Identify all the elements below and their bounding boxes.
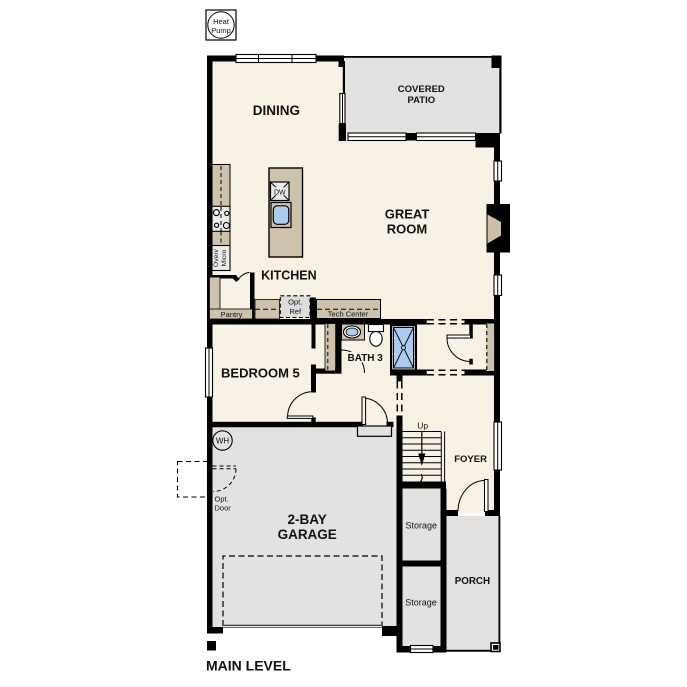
- svg-text:COVERED: COVERED: [398, 84, 445, 95]
- svg-text:DINING: DINING: [253, 103, 300, 118]
- svg-text:Oven/: Oven/: [213, 249, 220, 267]
- svg-text:Pump: Pump: [211, 26, 231, 35]
- svg-text:DW: DW: [274, 189, 286, 196]
- svg-text:KITCHEN: KITCHEN: [261, 268, 317, 282]
- svg-text:Opt.: Opt.: [215, 495, 229, 504]
- svg-text:BEDROOM 5: BEDROOM 5: [221, 366, 300, 381]
- svg-text:Opt.: Opt.: [288, 298, 302, 307]
- svg-text:PORCH: PORCH: [455, 576, 490, 587]
- svg-text:Heat: Heat: [213, 17, 230, 26]
- svg-text:FOYER: FOYER: [454, 454, 487, 465]
- svg-text:Storage: Storage: [405, 598, 437, 608]
- svg-text:Tech Center: Tech Center: [328, 310, 369, 319]
- svg-text:Storage: Storage: [406, 521, 438, 531]
- svg-text:ROOM: ROOM: [387, 222, 427, 237]
- svg-text:WH: WH: [216, 437, 230, 446]
- svg-text:Ref: Ref: [289, 307, 302, 316]
- svg-text:2-BAY: 2-BAY: [288, 512, 327, 527]
- svg-text:GREAT: GREAT: [385, 207, 430, 222]
- svg-text:Door: Door: [215, 504, 232, 513]
- svg-text:Micro: Micro: [221, 249, 228, 266]
- svg-text:Pantry: Pantry: [221, 310, 243, 319]
- svg-text:Up: Up: [417, 421, 428, 431]
- svg-text:BATH 3: BATH 3: [348, 353, 384, 364]
- svg-text:PATIO: PATIO: [407, 95, 435, 106]
- svg-text:GARAGE: GARAGE: [278, 527, 337, 542]
- svg-text:MAIN LEVEL: MAIN LEVEL: [206, 658, 291, 674]
